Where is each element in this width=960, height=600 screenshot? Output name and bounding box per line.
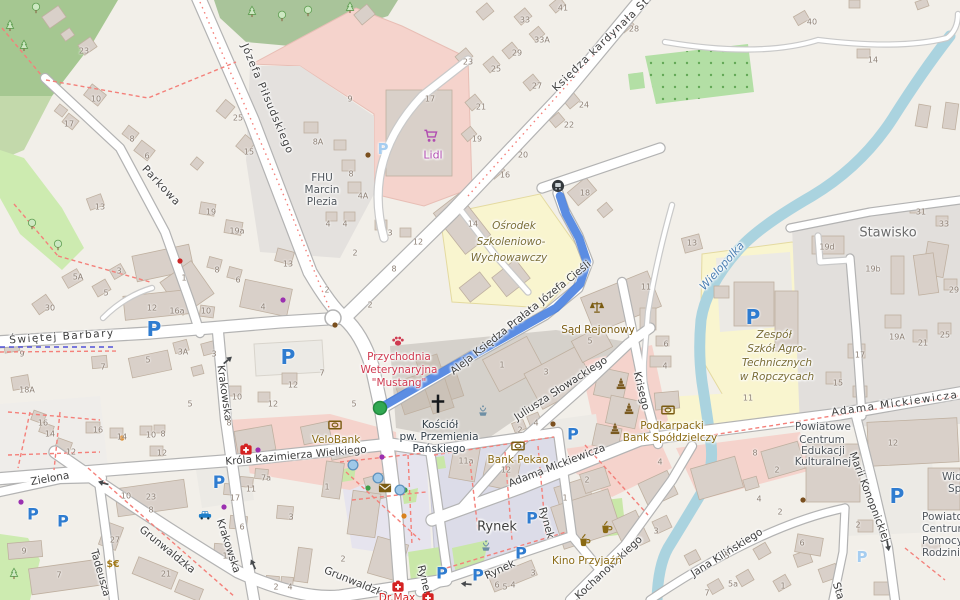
parking-icon: P bbox=[378, 140, 389, 158]
house-number: 3 bbox=[653, 527, 658, 536]
house-number: 5 bbox=[724, 552, 729, 561]
zespol-label: Zespół bbox=[756, 330, 791, 341]
conifer-icon bbox=[4, 18, 17, 31]
house-number: 17 bbox=[64, 120, 74, 129]
street-label: Adama Mickiewicza bbox=[831, 390, 959, 418]
conifer-icon bbox=[246, 4, 259, 17]
house-number: 3 bbox=[543, 368, 548, 377]
house-number: 4A bbox=[358, 192, 369, 201]
house-number: 11 bbox=[246, 485, 256, 494]
street-label: Rynek bbox=[537, 506, 556, 540]
pcek-label: Powiatowe bbox=[795, 422, 851, 433]
house-number: 17 bbox=[855, 351, 865, 360]
conifer-icon bbox=[344, 0, 357, 13]
house-number: 16a bbox=[169, 307, 184, 316]
house-number: 6 bbox=[235, 276, 240, 285]
street-label: Marii Konopnickiej bbox=[847, 451, 891, 544]
house-number: 13 bbox=[283, 260, 293, 269]
house-number: 20 bbox=[518, 151, 528, 160]
house-number: 18 bbox=[580, 189, 590, 198]
house-number: 1 bbox=[499, 361, 504, 370]
sad-rejonowy-label: Sąd Rejonowy bbox=[561, 325, 635, 336]
house-number: 2 bbox=[584, 476, 589, 485]
tree-icon bbox=[26, 216, 39, 229]
osrodek-label: Szkoleniowo- bbox=[477, 237, 546, 248]
house-number: 6 bbox=[144, 152, 149, 161]
house-number: 5A bbox=[73, 273, 84, 282]
house-number: 19a bbox=[229, 227, 244, 236]
parking-icon: P bbox=[27, 505, 39, 524]
pcpr-label: Centrum bbox=[922, 524, 960, 535]
parking-icon: P bbox=[213, 473, 225, 493]
house-number: 23 bbox=[463, 58, 473, 67]
house-number: 4 bbox=[287, 583, 292, 592]
house-number: 7 bbox=[319, 369, 324, 378]
street-label: Rynek bbox=[483, 558, 517, 581]
fhu-label: FHU bbox=[311, 173, 333, 184]
fountain-pool-icon-3 bbox=[393, 483, 408, 498]
house-number: 3 bbox=[288, 513, 293, 522]
house-number: 7a bbox=[261, 474, 271, 483]
house-number: 1 bbox=[324, 483, 329, 492]
podkarpacki-bank-icon bbox=[661, 403, 676, 418]
house-number: 12 bbox=[288, 381, 298, 390]
vet-label: Weterynaryjna bbox=[361, 365, 438, 376]
house-number: 14 bbox=[117, 433, 127, 442]
house-number: 12 bbox=[501, 466, 511, 475]
wid-label: Wid bbox=[942, 472, 960, 483]
osrodek-label: Wychowawczy bbox=[471, 253, 548, 264]
house-number: 21 bbox=[161, 570, 171, 579]
house-number: 4 bbox=[657, 458, 662, 467]
house-number: 28 bbox=[629, 25, 639, 34]
drmax-pharmacy-icon bbox=[391, 579, 406, 594]
house-number: 11 bbox=[641, 283, 651, 292]
pcek-label: Kulturalnej bbox=[795, 457, 851, 468]
oneway-arrow-icon-4 bbox=[458, 576, 474, 592]
house-number: 7 bbox=[704, 589, 709, 598]
oneway-arrow-icon-5 bbox=[879, 537, 896, 554]
osrodek-label: Ośrodek bbox=[492, 221, 536, 232]
house-number: 14 bbox=[45, 430, 55, 439]
house-number: 41 bbox=[558, 4, 568, 13]
conifer-icon bbox=[8, 566, 21, 579]
taxi-stand-icon bbox=[198, 507, 213, 522]
oneway-arrow-icon-3 bbox=[94, 474, 112, 492]
velobank-label: VeloBank bbox=[312, 435, 361, 446]
house-number: 3 bbox=[116, 267, 121, 276]
house-number: 27 bbox=[110, 536, 120, 545]
wid-label: Sp bbox=[948, 484, 960, 495]
house-number: 15 bbox=[833, 379, 843, 388]
street-label: Księdza kardynała St bbox=[551, 0, 652, 94]
parking-icon: P bbox=[746, 305, 761, 329]
house-number: 12 bbox=[268, 400, 278, 409]
pcek-label: Edukacji bbox=[801, 446, 845, 457]
house-number: 8 bbox=[226, 419, 231, 428]
parking-icon: P bbox=[857, 548, 868, 566]
house-number: 19 bbox=[472, 135, 482, 144]
street-label: Sta bbox=[830, 581, 845, 600]
house-number: 12 bbox=[147, 304, 157, 313]
house-number: 10 bbox=[121, 492, 131, 501]
house-number: 18A bbox=[19, 386, 35, 395]
pcpr-label: Pomocy bbox=[922, 536, 960, 547]
house-number: 13 bbox=[687, 239, 697, 248]
house-number: 16 bbox=[38, 419, 48, 428]
house-number: 10 bbox=[232, 393, 242, 402]
house-number: 5 bbox=[502, 583, 507, 592]
church-label: Kościół bbox=[422, 420, 458, 431]
stawisko-label: Stawisko bbox=[859, 227, 916, 240]
monument-icon bbox=[614, 377, 629, 392]
house-number: 25 bbox=[233, 114, 243, 123]
house-number: 31 bbox=[916, 208, 926, 217]
house-number: 8 bbox=[752, 449, 757, 458]
house-number: 19A bbox=[889, 333, 905, 342]
house-number: 8 bbox=[129, 135, 134, 144]
house-number: 4 bbox=[756, 495, 761, 504]
house-number: 1 bbox=[562, 494, 567, 503]
street-label: Aleja Księdza Prałata Józefa Cieśli bbox=[449, 259, 593, 377]
house-number: 4 bbox=[325, 220, 330, 229]
house-number: 8 bbox=[148, 506, 153, 515]
cafe-icon-2 bbox=[599, 521, 614, 536]
house-number: 1 bbox=[780, 582, 785, 591]
house-number: 12 bbox=[413, 238, 423, 247]
fhu-label: Marcin bbox=[305, 185, 340, 196]
bank-pekao-label: Bank Pekao bbox=[488, 455, 549, 466]
monument-icon-3 bbox=[608, 422, 623, 437]
street-label: Zielona bbox=[30, 470, 70, 487]
house-number: 6 bbox=[494, 581, 499, 590]
house-number: 25 bbox=[940, 331, 950, 340]
house-number: 4 bbox=[260, 303, 265, 312]
monument-icon-2 bbox=[622, 402, 637, 417]
pharmacy-icon-2 bbox=[421, 590, 436, 600]
house-number: 29 bbox=[949, 286, 959, 295]
house-number: 10 bbox=[146, 431, 156, 440]
house-number: 22 bbox=[564, 121, 574, 130]
fountain-icon-2 bbox=[479, 539, 494, 554]
tree-icon bbox=[302, 3, 315, 16]
parking-icon: P bbox=[147, 317, 162, 341]
fountain-pool-icon-2 bbox=[371, 471, 386, 486]
house-number: 2 bbox=[352, 249, 357, 258]
house-number: 30 bbox=[45, 304, 55, 313]
house-number: 3A bbox=[178, 348, 189, 357]
house-number: 11 bbox=[743, 394, 753, 403]
bank-pekao-icon bbox=[511, 439, 526, 454]
zespol-label: Szkół Agro- bbox=[747, 344, 806, 355]
house-number: 40 bbox=[807, 18, 817, 27]
street-label: Parkowa bbox=[140, 164, 182, 208]
fhu-label: Plezia bbox=[307, 197, 338, 208]
house-number: 9 bbox=[21, 547, 26, 556]
kino-label: Kino Przyjaźń bbox=[552, 556, 622, 567]
house-number: 6 bbox=[663, 340, 668, 349]
house-number: 29 bbox=[512, 49, 522, 58]
house-number: 12 bbox=[66, 448, 76, 457]
fountain-icon bbox=[476, 404, 491, 419]
house-number: 21 bbox=[918, 339, 928, 348]
house-number: 4 bbox=[662, 362, 667, 371]
house-number: 27 bbox=[532, 82, 542, 91]
parking-icon: P bbox=[436, 564, 448, 583]
drmax-label: Dr.Max bbox=[379, 593, 415, 600]
zespol-label: Technicznych bbox=[742, 358, 812, 369]
church-cross-icon bbox=[428, 394, 448, 414]
house-number: 5 bbox=[103, 289, 108, 298]
parking-icon: P bbox=[890, 484, 905, 508]
church-label: Pańskiego bbox=[413, 444, 466, 455]
house-number: 10 bbox=[201, 307, 211, 316]
house-number: 8 bbox=[348, 170, 353, 179]
house-number: 16 bbox=[93, 426, 103, 435]
vet-label: Przychodnia bbox=[367, 352, 431, 363]
courthouse-scales-icon bbox=[590, 300, 605, 315]
house-number: 17 bbox=[425, 95, 435, 104]
street-label: Krakowska bbox=[214, 518, 241, 575]
house-number: 6 bbox=[799, 539, 804, 548]
podkarpacki-label: Podkarpacki bbox=[640, 421, 704, 432]
house-number: 4 bbox=[510, 581, 515, 590]
house-number: 2 bbox=[367, 301, 372, 310]
map-labels-layer: Józefa PiłsudskiegoKsiędza kardynała StP… bbox=[0, 0, 960, 600]
house-number: 9 bbox=[19, 350, 24, 359]
house-number: 12 bbox=[157, 449, 167, 458]
house-number: 6 bbox=[239, 523, 244, 532]
street-label: Józefa Piłsudskiego bbox=[239, 42, 295, 155]
velobank-icon bbox=[328, 418, 343, 433]
house-number: 5 bbox=[145, 356, 150, 365]
house-number: 14 bbox=[468, 220, 478, 229]
house-number: 8 bbox=[214, 266, 219, 275]
house-number: 2 bbox=[774, 466, 779, 475]
house-number: 13 bbox=[95, 203, 105, 212]
pcpr-label: Powiatowe bbox=[922, 512, 960, 523]
house-number: 19b bbox=[865, 265, 880, 274]
parking-icon: P bbox=[526, 509, 538, 528]
veterinary-paw-icon bbox=[391, 334, 406, 349]
parking-icon: P bbox=[281, 345, 296, 369]
house-number: 2 bbox=[855, 521, 860, 530]
house-number: 2 bbox=[324, 286, 329, 295]
house-number: 11a bbox=[458, 457, 473, 466]
house-number: 12 bbox=[888, 439, 898, 448]
house-number: 8 bbox=[391, 265, 396, 274]
parking-icon: P bbox=[472, 566, 484, 585]
house-number: 33 bbox=[939, 220, 949, 229]
rynek-label: Rynek bbox=[477, 521, 517, 534]
currency-exchange-icon: $€ bbox=[106, 556, 121, 571]
oneway-arrow-icon-2 bbox=[243, 554, 263, 574]
lidl-cart-icon bbox=[424, 129, 439, 144]
house-number: 25 bbox=[491, 65, 501, 74]
zespol-label: w Ropczycach bbox=[740, 372, 814, 383]
house-number: 15 bbox=[244, 148, 254, 157]
pharmacy-icon bbox=[239, 442, 254, 457]
house-number: 1 bbox=[181, 274, 186, 283]
house-number: 14 bbox=[868, 56, 878, 65]
wielopolka-label: Wielopolka bbox=[698, 240, 747, 292]
pcek-label: Centrum bbox=[799, 435, 845, 446]
house-number: 1 bbox=[222, 552, 227, 561]
house-number: 3 bbox=[211, 350, 216, 359]
street-label: Świętej Barbary bbox=[9, 328, 115, 346]
house-number: 5a bbox=[728, 580, 738, 589]
house-number: 17 bbox=[230, 494, 240, 503]
conifer-icon bbox=[18, 38, 31, 51]
church-label: pw. Przemienia bbox=[399, 432, 478, 443]
house-number: 19d bbox=[819, 243, 834, 252]
house-number: 3 bbox=[387, 229, 392, 238]
parking-icon: P bbox=[515, 544, 527, 563]
cafe-icon bbox=[577, 534, 592, 549]
vet-label: "Mustang" bbox=[372, 378, 427, 389]
house-number: 23 bbox=[146, 493, 156, 502]
house-number: 2 bbox=[273, 583, 278, 592]
parking-icon: P bbox=[57, 512, 69, 531]
pcpr-label: Rodzinie bbox=[922, 548, 960, 559]
house-number: 33 bbox=[520, 16, 530, 25]
house-number: 21 bbox=[476, 103, 486, 112]
bus-stop-icon bbox=[551, 179, 566, 194]
podkarpacki-label: Bank Spółdzielczy bbox=[623, 433, 717, 444]
svg-text:$€: $€ bbox=[106, 559, 119, 570]
fountain-pool-icon bbox=[346, 458, 361, 473]
house-number: 2 bbox=[340, 555, 345, 564]
house-number: 7 bbox=[100, 363, 105, 372]
house-number: 4 bbox=[342, 220, 347, 229]
lidl-label: Lidl bbox=[423, 150, 442, 161]
tree-icon bbox=[276, 8, 289, 21]
house-number: 8A bbox=[313, 138, 324, 147]
house-number: 2 bbox=[517, 426, 522, 435]
map-canvas[interactable]: Józefa PiłsudskiegoKsiędza kardynała StP… bbox=[0, 0, 960, 600]
street-label: Juliusza Słowackiego bbox=[513, 355, 610, 423]
tree-icon bbox=[52, 237, 65, 250]
house-number: 10 bbox=[91, 95, 101, 104]
house-number: 7 bbox=[56, 571, 61, 580]
house-number: 3 bbox=[530, 569, 535, 578]
house-number: 19 bbox=[206, 208, 216, 217]
house-number: 5 bbox=[351, 400, 356, 409]
street-label: Krakowska bbox=[215, 364, 233, 421]
house-number: 9 bbox=[347, 95, 352, 104]
house-number: 24 bbox=[579, 101, 589, 110]
house-number: 33A bbox=[534, 36, 550, 45]
house-number: 23 bbox=[79, 47, 89, 56]
street-label: Grunwaldzka bbox=[137, 524, 197, 575]
house-number: 16 bbox=[500, 171, 510, 180]
house-number: 2 bbox=[777, 508, 782, 517]
house-number: 5 bbox=[587, 337, 592, 346]
house-number: 8 bbox=[160, 430, 165, 439]
house-number: 4 bbox=[533, 419, 538, 428]
house-number: 5 bbox=[187, 400, 192, 409]
parking-icon: P bbox=[567, 425, 579, 444]
tree-icon bbox=[30, 0, 43, 13]
